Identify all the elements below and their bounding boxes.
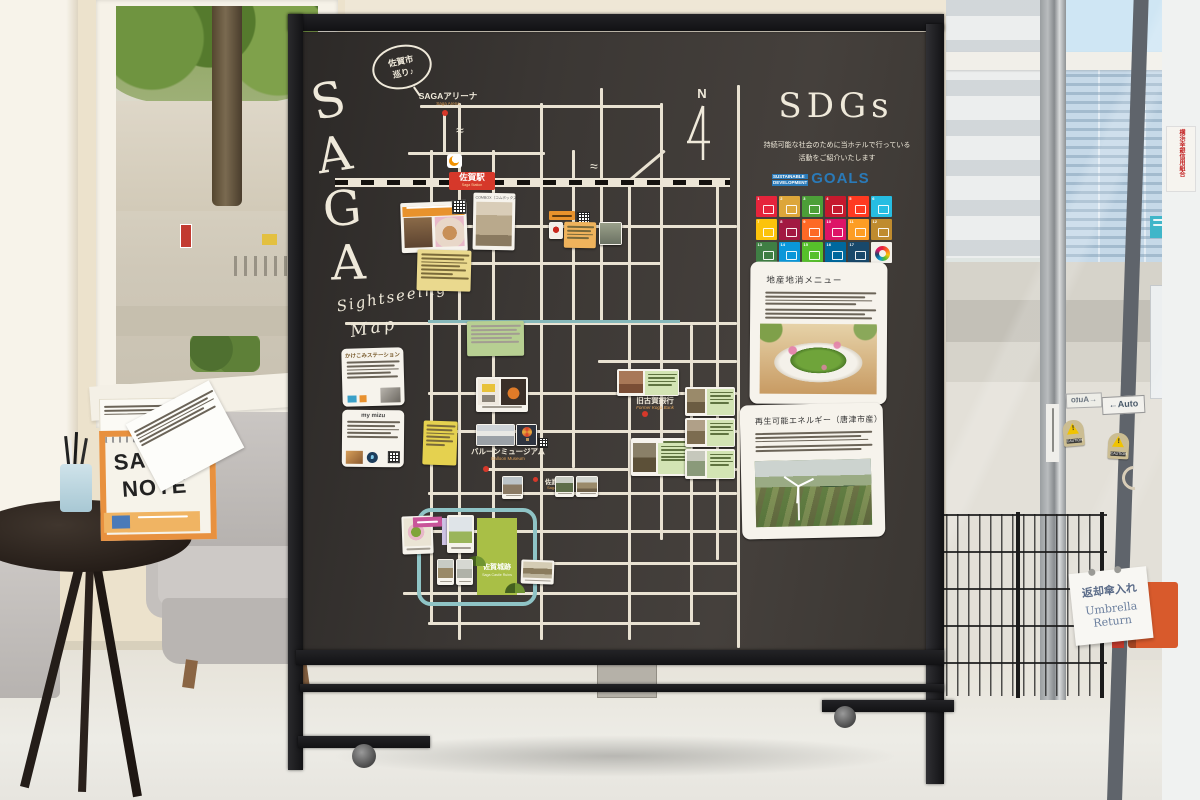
sdg-tile: 11	[848, 219, 869, 240]
sdg-tile: 3	[802, 196, 823, 217]
door-notice-strip	[1046, 404, 1059, 462]
sdgs-caption-2: 活動をご紹介いたします	[742, 155, 932, 163]
board-frame-bottom	[296, 650, 944, 665]
comfort-hotel-logo	[447, 154, 462, 168]
shop-label	[549, 211, 575, 220]
north-label: N	[690, 86, 714, 101]
sdg-tile: 15	[802, 242, 823, 263]
local-food-card: 地産地消メニュー	[750, 262, 888, 405]
sdg-logo-goals: GOALS	[811, 170, 869, 187]
pamphlet-image	[112, 515, 130, 528]
hedge	[190, 334, 260, 372]
sdg-logo-word2: DEVELOPMENT	[772, 180, 808, 185]
description	[645, 371, 678, 395]
sticky-note	[416, 249, 471, 291]
shrine-marker	[533, 477, 538, 482]
gate-card	[521, 559, 555, 584]
photo	[556, 477, 573, 492]
river-line	[428, 320, 680, 323]
logo-blue	[347, 395, 356, 402]
railway-line	[335, 178, 730, 187]
arena-label: SAGAアリーナ Saga Arena	[408, 92, 488, 107]
sdg-tile: 4	[825, 196, 846, 217]
photo	[687, 420, 705, 444]
turbine-photo	[755, 459, 872, 527]
sdg-tile: 14	[779, 242, 800, 263]
photo	[457, 560, 472, 578]
photo	[449, 517, 472, 543]
sdg-tile: 12	[871, 219, 892, 240]
outside-sign-text: 横浜幸銀信用組合	[1178, 129, 1184, 177]
sticky-note	[564, 222, 596, 249]
sdg-tile: 17	[848, 242, 869, 263]
balloon-marker	[483, 466, 489, 472]
sdg-logo-word1: SUSTAINABLE	[772, 174, 808, 179]
tree-trunk	[212, 6, 242, 206]
bicycles	[234, 256, 294, 276]
mymizu-card: my mizu	[342, 410, 404, 468]
balloon-photo	[516, 424, 537, 446]
turbine-blade	[798, 478, 814, 487]
sdg-wheel-icon	[875, 246, 890, 261]
sdg-wheel-tile	[871, 242, 892, 263]
logo-orange	[359, 395, 366, 402]
photo	[503, 477, 522, 494]
sdg-tile: 2	[779, 196, 800, 217]
turbine-blade	[784, 476, 799, 487]
river-wave-glyph: ≈	[456, 122, 464, 138]
qr-code	[538, 438, 548, 448]
photo	[523, 562, 553, 579]
pink-label	[413, 516, 442, 527]
combox-card: COMBOX（コムボックス）	[473, 193, 516, 251]
pamphlet	[104, 511, 200, 533]
photo	[619, 371, 643, 393]
photo	[687, 451, 705, 476]
photo-card	[456, 559, 473, 585]
sdg-tile: 6	[871, 196, 892, 217]
photo	[550, 223, 562, 238]
qr-code	[452, 200, 466, 214]
qr-code	[388, 451, 400, 463]
renewable-card: 再生可能エネルギー（唐津市産）	[740, 403, 886, 540]
crescent-icon	[449, 156, 459, 166]
photo-card	[576, 476, 598, 497]
photo	[438, 560, 453, 578]
board-frame-right	[926, 24, 944, 784]
green-note	[467, 321, 524, 356]
rack-post	[1016, 512, 1020, 698]
bank-label: 旧古賀銀行 Former Koga Bank	[620, 397, 690, 411]
photo	[633, 443, 656, 472]
card1-title: 地産地消メニュー	[766, 274, 887, 287]
sdg-logo: SUSTAINABLE DEVELOPMENT GOALS	[772, 170, 892, 192]
photo	[380, 387, 400, 403]
saga-letter: A	[330, 235, 367, 291]
caster-wheel	[352, 744, 376, 768]
salad-photo	[760, 324, 877, 395]
kakekomi-card: かけこみステーション	[341, 347, 404, 407]
photo-card	[599, 222, 622, 245]
kakekomi-title: かけこみステーション	[341, 350, 403, 360]
sdg-tile: 7	[756, 219, 777, 240]
balloon-museum-label: バルーンミュージアム Balloon Museum	[462, 448, 554, 462]
binder-clip	[1088, 568, 1096, 576]
photo	[476, 202, 513, 247]
saga-letter: G	[321, 180, 364, 238]
description	[707, 451, 734, 478]
photo-card	[437, 559, 454, 585]
sdg-tile: 10	[825, 219, 846, 240]
auto-sign: ←Auto	[1102, 395, 1146, 415]
photo	[600, 223, 621, 244]
photo	[501, 379, 526, 405]
sdg-tile: 16	[825, 242, 846, 263]
heritage-card	[685, 449, 735, 479]
wall-outlet-box	[597, 662, 657, 698]
street-sign-red	[180, 224, 192, 248]
board-frame-top	[288, 14, 944, 31]
photo	[517, 425, 536, 445]
photo-card	[549, 222, 563, 239]
photo	[477, 425, 514, 445]
sticky-note	[422, 420, 458, 465]
photo-card	[502, 476, 523, 499]
sdg-tile: 5	[848, 196, 869, 217]
heritage-card	[685, 387, 735, 416]
photo-card	[555, 476, 574, 497]
caster-wheel	[834, 706, 856, 728]
card2-title: 再生可能エネルギー（唐津市産）	[755, 414, 883, 428]
photo	[404, 217, 433, 248]
hotel-lobby-photo: 横浜幸銀信用組合 ←Auto ←Auto ! CAUTION ! CAUTION…	[0, 0, 1200, 800]
photo	[687, 389, 705, 413]
north-arrow-icon	[682, 100, 722, 166]
sdg-tile: 13	[756, 242, 777, 263]
pen-cup	[60, 464, 92, 512]
binder-clip	[1114, 566, 1122, 574]
photo	[435, 216, 465, 247]
mymizu-title: my mizu	[342, 413, 404, 420]
heritage-card	[631, 438, 692, 476]
description	[707, 389, 734, 415]
photo	[346, 451, 363, 464]
bank-card	[617, 369, 679, 396]
sdgs-title: SDGs	[756, 86, 916, 126]
sdg-tile: 9	[802, 219, 823, 240]
station-label: 佐賀駅 Saga Station	[449, 172, 495, 190]
sdg-grid: 1234567891011121314151617	[756, 196, 892, 263]
arena-marker	[442, 110, 448, 116]
photo-card	[476, 377, 528, 412]
bank-marker	[642, 411, 648, 417]
balloon-museum-photo	[476, 424, 515, 446]
board-stretcher	[300, 684, 944, 692]
auto-sign-mirror: ←Auto	[1066, 392, 1103, 408]
mymizu-logo	[367, 452, 378, 463]
outside-sign: 横浜幸銀信用組合	[1166, 126, 1196, 192]
sdg-tile: 1	[756, 196, 777, 217]
sdgs-caption-1: 持続可能な社会のために当ホテルで行っている	[742, 142, 932, 150]
heritage-card	[685, 418, 735, 447]
street-sign-yellow	[262, 234, 277, 245]
caution-sticker: ! CAUTION	[1062, 419, 1085, 447]
museum-card	[447, 515, 474, 553]
caution-sticker: ! CAUTION	[1107, 432, 1129, 459]
umbrella-return-sign: 返却傘入れ Umbrella Return	[1068, 566, 1153, 646]
description	[707, 420, 734, 446]
river-wave-glyph: ≈	[590, 158, 598, 174]
balloon-icon	[522, 427, 532, 437]
sdg-tile: 8	[779, 219, 800, 240]
bright-right-edge	[1162, 0, 1200, 800]
photo	[577, 477, 597, 492]
combox-title: COMBOX（コムボックス）	[475, 195, 513, 201]
photo	[478, 379, 499, 405]
castle-label-en: Saga Castle Ruins	[479, 572, 515, 577]
